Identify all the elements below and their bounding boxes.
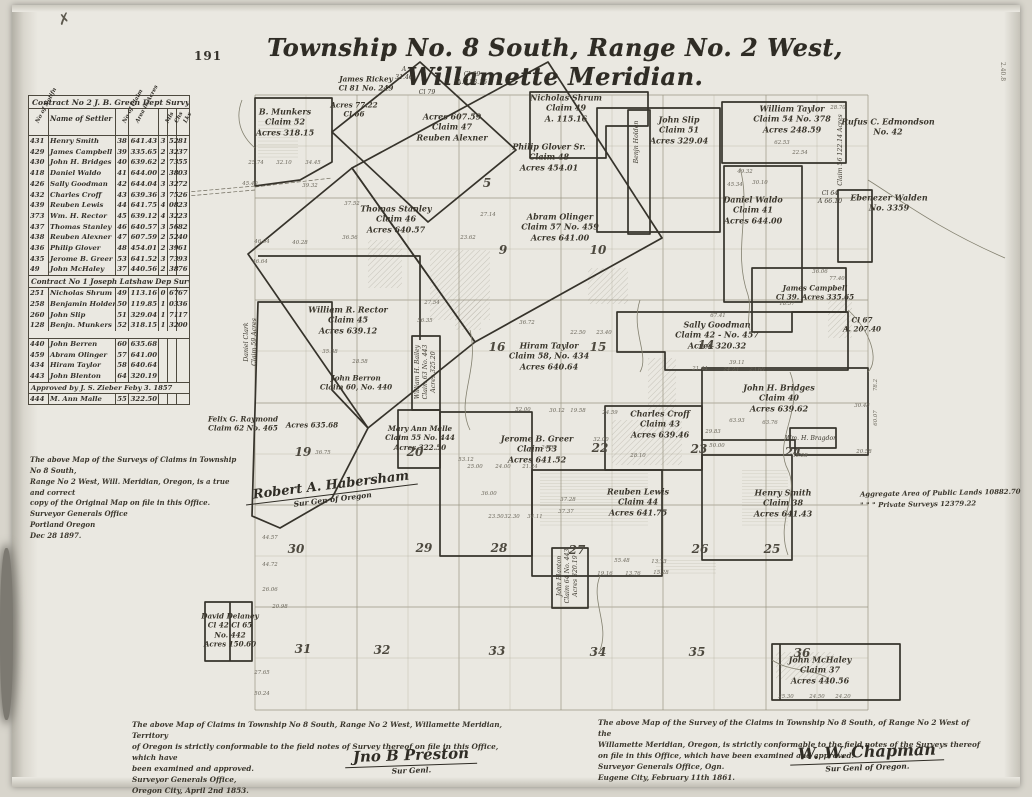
margin-scribble: 2.40.8 [999, 62, 1006, 81]
measurement: 25.30 [778, 694, 793, 700]
measurement: 24.23 [723, 367, 738, 373]
claim-label: Henry Smith Claim 38 Acres 641.43 [754, 487, 812, 518]
table-row: 436Philip Glover 48454.01 23961 [29, 243, 189, 254]
measurement: 46.64 [252, 259, 267, 265]
measurement: 24.20 [835, 694, 850, 700]
claim-label: Cl 64 A 66.10 [818, 190, 842, 206]
table-row: 435Jerome B. Greer 53641.52 37393 [29, 254, 189, 265]
section-number: 19 [295, 445, 312, 459]
measurement: 37.28 [560, 497, 575, 503]
measurement: 24.00 [495, 464, 510, 470]
measurement: 40.28 [292, 240, 307, 246]
chapman-signature: W. W. Chapman Sur Genl of Oregon. [790, 739, 945, 774]
table-row: 49John McHaley 37440.56 23876 [29, 264, 189, 275]
measurement: 44.72 [262, 562, 277, 568]
table-row: 426Sally Goodman 42644.04 33272 [29, 179, 189, 190]
measurement: 53.12 [458, 457, 473, 463]
claim-label: Acres 77.22 Cl 66 [330, 101, 377, 120]
table-row: 437Thomas Stanley 46640.57 35682 [29, 222, 189, 233]
claim-label: Wm. H. Bragdon [785, 435, 837, 443]
map-title: Township No. 8 South, Range No. 2 West, … [225, 33, 885, 91]
measurement: 23.62 [460, 235, 475, 241]
table-row: 418Daniel Waldo 41644.00 23803 [29, 168, 189, 179]
table-row: 258Benjamin Holden 50119.85 10336 [29, 299, 189, 310]
section-number: 30 [288, 542, 305, 556]
section-number: 26 [692, 542, 709, 556]
table-row: 438Reuben Alexner 47607.59 25240 [29, 232, 189, 243]
section-number: 28 [491, 541, 508, 555]
table-row: 128Benjn. Munkers 52318.15 13200 [29, 320, 189, 331]
claim-label: Rufus C. Edmondson No. 42 [841, 117, 934, 138]
settler-table: Contract No 2 J. B. Green Dept Survy No … [28, 95, 190, 405]
measurement: 63.93 [729, 418, 744, 424]
contract1-header: Contract No 1 Joseph Latshaw Dep Survy [29, 275, 189, 288]
measurement: 20.58 [856, 449, 871, 455]
claim-label: William H. Bailey Claim 63 No. 443 Acres… [414, 345, 438, 400]
section-number: 16 [489, 340, 506, 354]
measurement: 23.60 [749, 367, 764, 373]
section-number: 22 [592, 441, 609, 455]
measurement: 27.65 [254, 670, 269, 676]
measurement: 29.83 [705, 429, 720, 435]
claim-label: Thomas Stanley Claim 46 Acres 640.57 [360, 203, 431, 234]
section-number: 36 [794, 646, 811, 660]
measurement: 15.28 [653, 570, 668, 576]
measurement: 28.10 [630, 453, 645, 459]
table-row: 429James Campbell 39335.65 23237 [29, 147, 189, 158]
measurement: 63.76 [762, 420, 777, 426]
measurement: 50.00 [709, 443, 724, 449]
measurement: 21.44 [692, 366, 707, 372]
claim-label: Reuben Lewis Claim 44 Acres 641.75 [607, 486, 669, 517]
measurement: 62.53 [774, 140, 789, 146]
section-number: 14 [698, 338, 715, 352]
measurement: 36.72 [519, 320, 534, 326]
claim-label: A 31.46 [395, 66, 413, 82]
measurement: 23.50 [488, 514, 503, 520]
measurement: 39.32 [302, 183, 317, 189]
measurement: 44.57 [262, 535, 277, 541]
section-number: 31 [295, 642, 312, 656]
measurement: 46.04 [254, 239, 269, 245]
measurement: 36.75 [315, 450, 330, 456]
section-number: 33 [489, 644, 506, 658]
measurement: 34.45 [305, 160, 320, 166]
claim-label: Acres 607.59 Claim 47 Reuben Alexner [416, 111, 487, 142]
aggregate-area-note: Aggregate Area of Public Lands 10882.70 … [860, 487, 1028, 512]
measurement: 30.12 [549, 408, 564, 414]
measurement: 78.2 [873, 379, 879, 391]
measurement: 67.41 [710, 313, 725, 319]
measurement: 25.74 [248, 160, 263, 166]
measurement: 19.16 [597, 571, 612, 577]
measurement: 22.54 [792, 150, 807, 156]
table-row: 251Nicholas Shrum 49113.16 06767 [29, 288, 189, 299]
page-number: 191 [194, 49, 222, 63]
col-name: Name of Settler [49, 109, 116, 135]
measurement: 24.59 [602, 410, 617, 416]
measurement: 35.58 [792, 453, 807, 459]
table-row: 439Reuben Lewis 44641.75 40823 [29, 200, 189, 211]
claim-label: Cl 67 A. 207.40 [843, 316, 881, 335]
preston-signature: Jno B Preston Sur Genl. [345, 744, 478, 778]
table-row: 440John Berren 60635.68 [29, 339, 189, 350]
claim-label: James Campbell Cl 39. Acres 335.65 [776, 284, 854, 303]
claim-label: James Rickey Cl 81 No. 249 [339, 75, 394, 94]
claim-label: Benjn Holden [633, 121, 641, 164]
table-row: 434Hiram Taylor 58640.64 [29, 360, 189, 371]
measurement: 28.58 [352, 359, 367, 365]
section-number: 15 [590, 340, 607, 354]
claim-label: Sally Goodman Claim 42 - No. 457 Acres 3… [675, 319, 759, 350]
claim-label: William Taylor Claim 54 No. 378 Acres 24… [753, 103, 831, 134]
measurement: 27.14 [480, 212, 495, 218]
claim-label: Nicholas Shrum Claim 49 A. 115.16 [530, 92, 602, 123]
claim-label: John H. Bridges Claim 40 Acres 639.62 [743, 382, 814, 413]
measurement: 13.76 [625, 571, 640, 577]
measurement: 36.06 [812, 269, 827, 275]
measurement: 28.70 [830, 105, 845, 111]
measurement: 37.52 [344, 201, 359, 207]
measurement: 25.00 [467, 464, 482, 470]
section-number: 9 [499, 243, 507, 257]
measurement: 22.50 [570, 330, 585, 336]
measurement: 45.40 [242, 181, 257, 187]
table-row: 459Abram Olinger 57641.00 [29, 350, 189, 361]
section-number: 32 [374, 643, 391, 657]
measurement: 19.58 [570, 408, 585, 414]
section-number: 29 [416, 541, 433, 555]
col-notif: No of Notifn [35, 114, 44, 124]
table-gap [29, 331, 189, 339]
table-row: 260John Slip 51329.04 17117 [29, 310, 189, 321]
measurement: 52.00 [515, 407, 530, 413]
measurement: 21.24 [522, 464, 537, 470]
col-area: Area in Acres [135, 114, 144, 124]
section-number: 20 [407, 445, 424, 459]
claim-label: David Delaney Cl 42 Cl 65 No. 442 Acres … [201, 611, 259, 648]
measurement: 34.11 [527, 514, 542, 520]
measurement: 13.73 [651, 559, 666, 565]
claim-label: John Berron Claim 60, No. 440 [320, 374, 392, 393]
claim-label: John Slip Claim 51 Acres 329.04 [650, 114, 708, 145]
measurement: 39.11 [729, 360, 744, 366]
copy-certificate: The above Map of the Surveys of Claims i… [30, 455, 245, 542]
measurement: 26.06 [262, 587, 277, 593]
measurement: 45.34 [727, 182, 742, 188]
measurement: 50.24 [254, 691, 269, 697]
measurement: 77.40 [829, 276, 844, 282]
section-number: 23 [691, 442, 708, 456]
claim-label: Abram Olinger Claim 57 No. 459 Acres 641… [521, 211, 599, 242]
claim-label: B. Munkers Claim 52 Acres 318.15 [256, 106, 314, 137]
section-number: 5 [483, 176, 491, 190]
measurement: 18.57 [779, 301, 794, 307]
table-row: 373Wm. H. Rector 45639.12 43223 [29, 211, 189, 222]
measurement: 24.58 [541, 445, 556, 451]
measurement: 36.56 [342, 235, 357, 241]
table-row: 444M. Ann Malle 55322.50 [29, 394, 189, 405]
measurement: 36.00 [481, 491, 496, 497]
measurement: 55.48 [614, 558, 629, 564]
contract1-rows: 251Nicholas Shrum 49113.16 06767 258Benj… [29, 288, 189, 331]
table-row: 432Charles Croff 43639.36 37526 [29, 190, 189, 201]
claim-label: Cl 79 [419, 89, 436, 97]
contract2-rows: 431Henry Smith 38641.43 35281 429James C… [29, 136, 189, 275]
table-row: 431Henry Smith 38641.43 35281 [29, 136, 189, 147]
measurement: 23.40 [596, 330, 611, 336]
table-row: 443John Blenton 64320.19 [29, 371, 189, 382]
supplemental-rows: 440John Berren 60635.68 459Abram Olinger… [29, 339, 189, 382]
claim-label: Daniel Waldo Claim 41 Acres 644.00 [723, 194, 782, 225]
table-row: 430John H. Bridges 40639.62 27355 [29, 157, 189, 168]
claim-label: Daniel Clark Claim 59 Acres [243, 318, 259, 366]
claim-label: Charles Croff Claim 43 Acres 639.46 [630, 408, 690, 439]
measurement: 32.30 [504, 514, 519, 520]
claim-label: Ebenezer Walden No. 3359 [850, 193, 927, 214]
measurement: 30.10 [752, 180, 767, 186]
measurement: 27.54 [424, 300, 439, 306]
claim-label: Hiram Taylor Claim 58, No. 434 Acres 640… [509, 340, 589, 371]
section-number: 35 [689, 645, 706, 659]
claim-label: Felix G. Raymond Claim 62 No. 465 [208, 415, 278, 434]
measurement: 20.98 [272, 604, 287, 610]
claim-label: Acres 635.68 [286, 420, 338, 429]
section-number: 27 [569, 543, 586, 557]
claim-label: Claim 56 122.14 Acres [837, 114, 845, 185]
measurement: 37.37 [558, 509, 573, 515]
measurement: 56.35 [417, 318, 432, 324]
claim-label: Philip Glover Sr. Claim 48 Acres 454.01 [512, 141, 585, 172]
measurement: 49.32 [737, 169, 752, 175]
measurement: 35.38 [322, 349, 337, 355]
claim-label: Jerome B. Greer Claim 53 Acres 641.52 [501, 433, 574, 464]
section-number: 25 [764, 542, 781, 556]
measurement: 30.48 [854, 403, 869, 409]
measurement: 24.50 [809, 694, 824, 700]
final-rows: 444M. Ann Malle 55322.50 [29, 394, 189, 405]
table-column-headers: No of Notifn Name of Settler No of Claim… [29, 109, 189, 136]
measurement: 60.07 [873, 410, 879, 425]
measurement: 32.10 [276, 160, 291, 166]
measurement: 32.00 [593, 437, 608, 443]
claim-label: Cl 69 A. 153.15 [457, 71, 487, 87]
approved-note: Approved by J. S. Zieber Feby 3. 1857 [29, 382, 189, 394]
section-number: 10 [590, 243, 607, 257]
section-number: 34 [590, 645, 607, 659]
claim-label: William R. Rector Claim 45 Acres 639.12 [308, 304, 388, 335]
